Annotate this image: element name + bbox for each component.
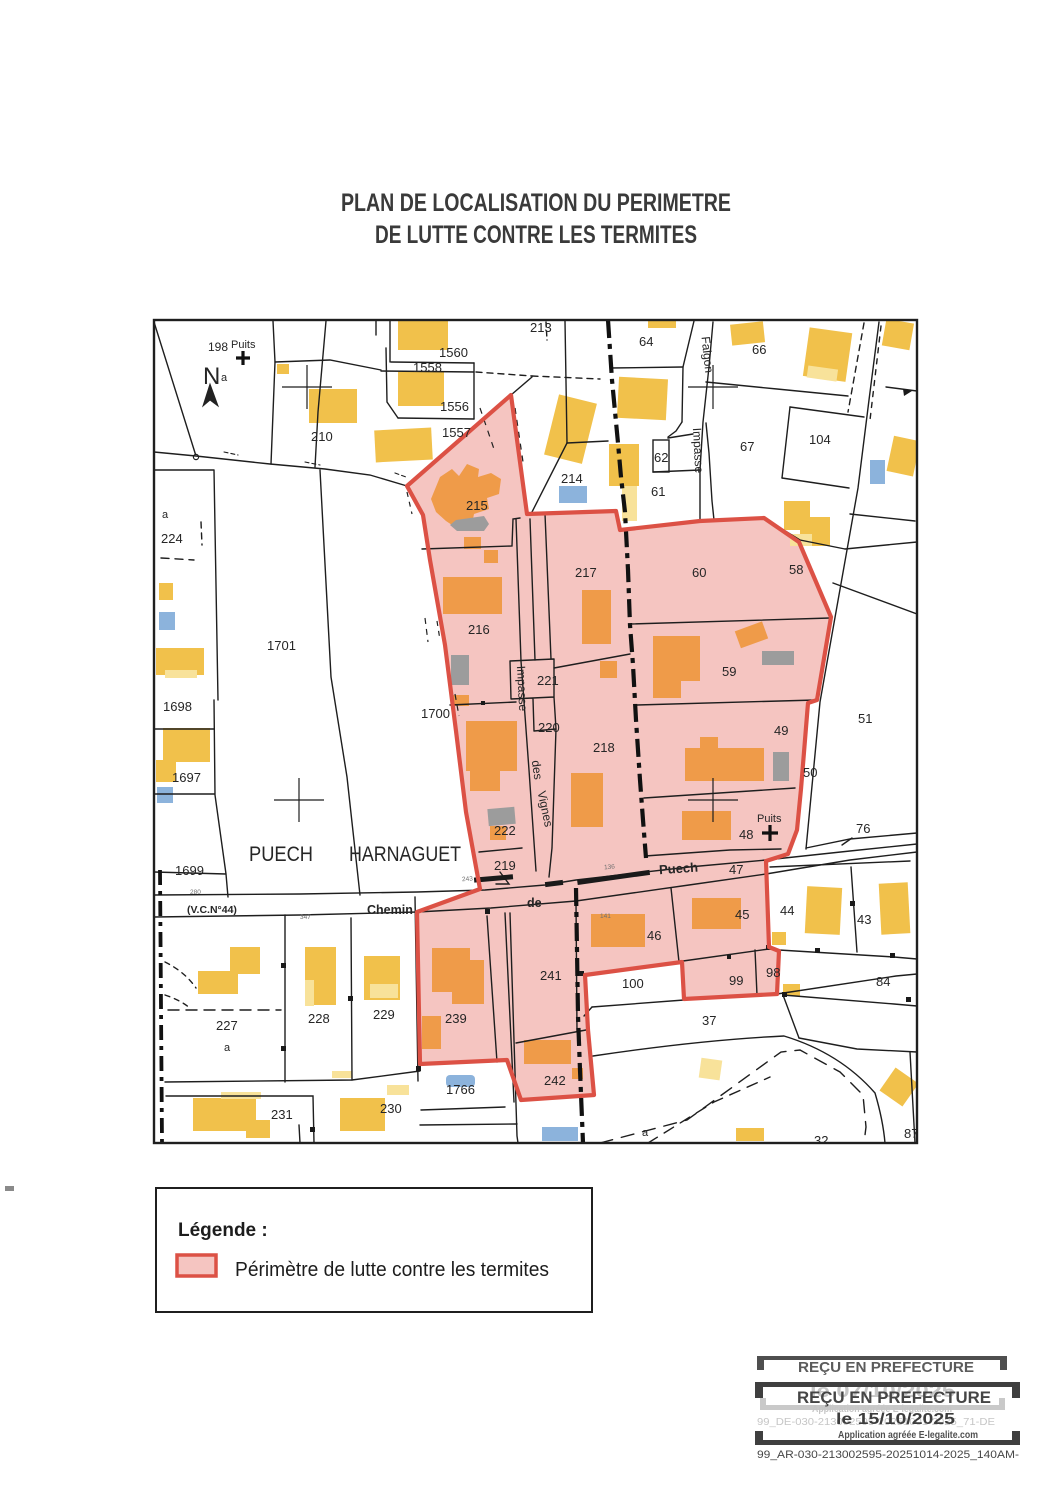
svg-text:67: 67 <box>740 439 754 454</box>
svg-text:224: 224 <box>161 531 183 546</box>
svg-text:des: des <box>529 759 546 780</box>
svg-text:Puech: Puech <box>659 860 699 878</box>
svg-text:32: 32 <box>814 1133 828 1148</box>
svg-text:66: 66 <box>752 342 766 357</box>
svg-text:Impasse: Impasse <box>514 665 530 711</box>
svg-text:222: 222 <box>494 823 516 838</box>
svg-text:230: 230 <box>380 1101 402 1116</box>
svg-text:241: 241 <box>540 968 562 983</box>
svg-text:242: 242 <box>544 1073 566 1088</box>
svg-text:228: 228 <box>308 1011 330 1026</box>
svg-text:218: 218 <box>593 740 615 755</box>
svg-text:59: 59 <box>722 664 736 679</box>
svg-text:220: 220 <box>538 720 560 735</box>
svg-text:1701: 1701 <box>267 638 296 653</box>
svg-text:243: 243 <box>462 876 474 884</box>
svg-text:60: 60 <box>692 565 706 580</box>
svg-text:1700: 1700 <box>421 706 450 721</box>
svg-text:62: 62 <box>654 450 668 465</box>
svg-text:104: 104 <box>809 432 831 447</box>
svg-text:Légende :: Légende : <box>178 1220 268 1241</box>
svg-text:PLAN DE LOCALISATION DU PERIME: PLAN DE LOCALISATION DU PERIMETRE <box>341 189 731 217</box>
svg-text:Chemin: Chemin <box>367 903 413 917</box>
svg-text:Périmètre de lutte contre les: Périmètre de lutte contre les termites <box>235 1259 549 1281</box>
svg-text:45: 45 <box>735 907 749 922</box>
svg-text:HARNAGUET: HARNAGUET <box>349 843 461 866</box>
svg-text:216: 216 <box>468 622 490 637</box>
svg-text:1699: 1699 <box>175 863 204 878</box>
svg-text:99_AR-030-213002595-20251014-2: 99_AR-030-213002595-20251014-2025_140AM- <box>757 1449 1019 1461</box>
svg-text:Impasse: Impasse <box>690 427 706 473</box>
svg-text:a: a <box>221 372 228 384</box>
svg-text:210: 210 <box>311 429 333 444</box>
svg-text:100: 100 <box>622 976 644 991</box>
svg-text:51: 51 <box>858 711 872 726</box>
svg-text:1558: 1558 <box>413 360 442 375</box>
svg-text:a: a <box>224 1042 231 1054</box>
svg-text:Application agréée E-legalite.: Application agréée E-legalite.com <box>838 1429 978 1441</box>
svg-text:50: 50 <box>803 765 817 780</box>
svg-text:de: de <box>527 896 542 910</box>
svg-text:le 15/10/2025: le 15/10/2025 <box>836 1411 955 1428</box>
svg-text:239: 239 <box>445 1011 467 1026</box>
svg-text:141: 141 <box>600 913 611 920</box>
svg-text:Puits: Puits <box>757 813 782 825</box>
svg-text:49: 49 <box>774 723 788 738</box>
svg-text:76: 76 <box>856 821 870 836</box>
svg-text:(V.C.N°44): (V.C.N°44) <box>187 904 237 916</box>
svg-text:231: 231 <box>271 1107 293 1122</box>
svg-text:46: 46 <box>647 928 661 943</box>
svg-text:219: 219 <box>494 858 516 873</box>
svg-text:1560: 1560 <box>439 345 468 360</box>
svg-text:43: 43 <box>857 912 871 927</box>
svg-text:198: 198 <box>208 340 228 354</box>
svg-text:213: 213 <box>530 320 552 335</box>
svg-text:Puits: Puits <box>231 339 256 351</box>
svg-text:1698: 1698 <box>163 699 192 714</box>
svg-text:1557: 1557 <box>442 425 471 440</box>
svg-text:217: 217 <box>575 565 597 580</box>
svg-text:99: 99 <box>729 973 743 988</box>
svg-text:REÇU EN PREFECTURE: REÇU EN PREFECTURE <box>798 1359 974 1376</box>
svg-text:37: 37 <box>702 1013 716 1028</box>
svg-text:a: a <box>162 509 169 521</box>
svg-text:214: 214 <box>561 471 583 486</box>
svg-text:98: 98 <box>766 965 780 980</box>
svg-text:84: 84 <box>876 974 890 989</box>
svg-text:280: 280 <box>190 889 201 896</box>
svg-text:44: 44 <box>780 903 794 918</box>
svg-text:1697: 1697 <box>172 770 201 785</box>
svg-text:1556: 1556 <box>440 399 469 414</box>
svg-text:229: 229 <box>373 1007 395 1022</box>
svg-text:215: 215 <box>466 498 488 513</box>
svg-text:221: 221 <box>537 673 559 688</box>
svg-text:64: 64 <box>639 334 653 349</box>
svg-text:227: 227 <box>216 1018 238 1033</box>
svg-text:REÇU EN PREFECTURE: REÇU EN PREFECTURE <box>797 1388 991 1407</box>
svg-text:N: N <box>203 363 220 390</box>
svg-text:DE LUTTE CONTRE LES TERMITES: DE LUTTE CONTRE LES TERMITES <box>375 221 697 249</box>
svg-text:58: 58 <box>789 562 803 577</box>
svg-text:61: 61 <box>651 484 665 499</box>
svg-text:a: a <box>642 1127 649 1139</box>
svg-text:48: 48 <box>739 827 753 842</box>
svg-text:136: 136 <box>604 863 616 871</box>
svg-text:1766: 1766 <box>446 1082 475 1097</box>
svg-text:PUECH: PUECH <box>249 843 313 866</box>
svg-text:347: 347 <box>300 914 311 921</box>
svg-text:47: 47 <box>729 862 743 877</box>
